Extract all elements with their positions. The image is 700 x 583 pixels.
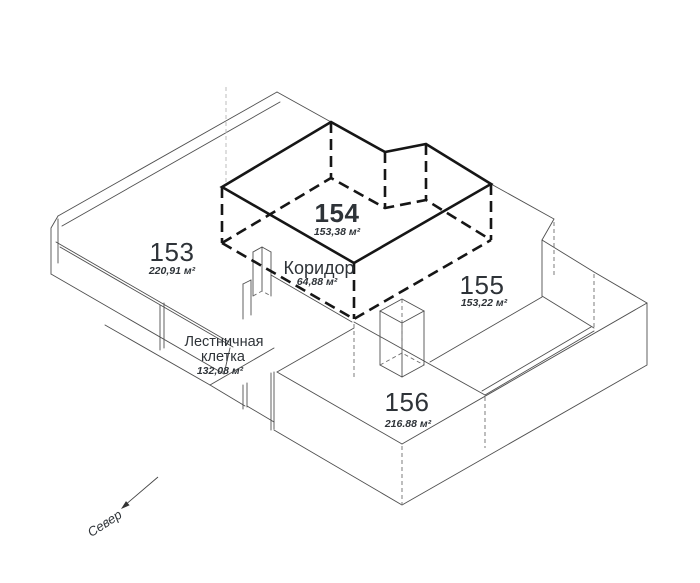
room-154-area: 153,38 м² — [314, 226, 361, 238]
north-label: Север — [85, 507, 125, 540]
staircase-name-line1: Лестничная — [184, 334, 263, 350]
corridor-name: Коридор — [283, 258, 354, 278]
corridor-label[interactable]: Коридор 64,88 м² — [283, 258, 354, 288]
room-155-label[interactable]: 155 153,22 м² — [460, 270, 508, 309]
room-156-label[interactable]: 156 216.88 м² — [384, 387, 432, 430]
floor-plan-svg: 153 220,91 м² 154 153,38 м² Коридор 64,8… — [0, 0, 700, 583]
floor-plan-page: 153 220,91 м² 154 153,38 м² Коридор 64,8… — [0, 0, 700, 583]
staircase-area: 132,08 м² — [197, 365, 244, 377]
staircase-label[interactable]: Лестничная клетка 132,08 м² — [184, 334, 263, 377]
north-indicator: Север — [85, 477, 158, 540]
room-154-label[interactable]: 154 153,38 м² — [314, 198, 361, 238]
room-153-label[interactable]: 153 220,91 м² — [148, 237, 196, 277]
room-153-area: 220,91 м² — [148, 265, 196, 277]
room-154-number: 154 — [315, 198, 360, 228]
room-153-number: 153 — [150, 237, 195, 267]
staircase-name-line2: клетка — [201, 349, 246, 365]
room-labels: 153 220,91 м² 154 153,38 м² Коридор 64,8… — [148, 198, 508, 430]
room-156-area: 216.88 м² — [384, 418, 432, 430]
room-156-number: 156 — [385, 387, 430, 417]
north-arrow-icon — [121, 477, 158, 509]
room-155-number: 155 — [460, 270, 505, 300]
corridor-area: 64,88 м² — [297, 276, 338, 288]
room-155-area: 153,22 м² — [461, 297, 508, 309]
